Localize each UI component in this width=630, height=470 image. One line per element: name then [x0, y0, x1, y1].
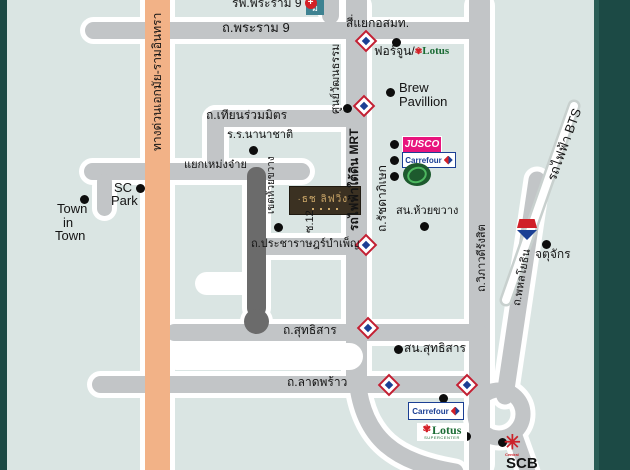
road-white-soi-b [163, 343, 363, 370]
hospital-cross-icon: + [305, 0, 317, 9]
road-dark-soi-end [244, 309, 269, 334]
central-flower-icon: ✳ [504, 433, 521, 453]
poi-dot-carrefour [390, 156, 399, 165]
lotus-flower-icon: ✾ [423, 425, 431, 435]
label-school: ร.ร.นานาชาติ [227, 130, 293, 142]
label-road-ratchadaphisek: ถ.รัชดาภิเษก [376, 165, 389, 232]
poi-dot-sutthisan-police [394, 345, 403, 354]
fortune-text: ฟอร์จูน/ [374, 45, 415, 58]
label-expressway: ทางด่วนเอกมัย-รามอินทรา [151, 13, 164, 151]
left-border [0, 0, 7, 470]
jusco-logo: JUSCO [402, 136, 442, 153]
poi-dot-green-mall [390, 172, 399, 181]
label-road-pracharat-bamphen: ถ.ประชาราษฎร์บำเพ็ญ [251, 239, 359, 251]
label-road-sutthisan: ถ.สุทธิสาร [283, 324, 337, 337]
project-deco-dots [312, 208, 338, 210]
label-town-1: Town [57, 202, 87, 216]
label-mcot-intersection: สี่แยกอสมท. [346, 17, 409, 30]
lotus-text: Lotus [422, 46, 449, 58]
label-brew: Brew [399, 81, 429, 95]
map-canvas: รพ.พระราม 9 + สี่แยกอสมท. ถ.พระราม 9 ฟอร… [0, 0, 630, 470]
bts-logo [517, 219, 537, 242]
label-scb: SCB [506, 456, 538, 470]
lotus-flower-icon: ✾ [415, 47, 423, 56]
project-name: ·ธช ลิฟวิ่ง· [297, 192, 352, 207]
poi-dot-jusco [390, 140, 399, 149]
lotus-sub-text: SUPERCENTER [424, 436, 460, 440]
label-soi-12: ซ.12 [305, 210, 317, 233]
label-rama9-hospital: รพ.พระราม 9 + [232, 0, 317, 10]
poi-dot-brew-pavillion [386, 88, 395, 97]
label-mrt-line: รถไฟฟ้าใต้ดิน MRT [348, 129, 361, 231]
label-sutthisan-police: สน.สุทธิสาร [404, 342, 466, 355]
label-park: Park [111, 194, 138, 208]
green-oval-mall-logo [403, 163, 431, 186]
right-border [594, 0, 630, 470]
rama9-hospital-text: รพ.พระราม 9 [232, 0, 302, 10]
poi-dot-cultural-centre [343, 104, 352, 113]
carrefour-ladprao-logo: Carrefour [408, 402, 464, 420]
label-cultural-centre: ศูนย์วัฒนธรรม [331, 44, 343, 114]
label-town-3: Town [55, 229, 85, 243]
carrefour-mark-icon [451, 407, 460, 416]
label-road-lat-phrao: ถ.ลาดพร้าว [287, 376, 347, 389]
road-scpark-stub [97, 174, 112, 216]
label-road-thiam-ruam-mit: ถ.เทียนร่วมมิตร [206, 109, 287, 122]
label-huai-khwang-district: เขตห้วยขวาง [267, 156, 278, 214]
label-pavillion: Pavillion [399, 95, 447, 109]
road-rachada-top-stub [322, 0, 339, 24]
poi-dot-sc-park [136, 184, 145, 193]
carrefour-text: Carrefour [412, 407, 448, 416]
label-fortune-lotus: ฟอร์จูน/ ✾ Lotus [374, 45, 449, 58]
poi-dot-huai-khwang-police [420, 222, 429, 231]
label-road-vibhavadi: ถ.วิภาวดีรังสิต [477, 224, 489, 292]
label-meng-jai: แยกเหม่งจ๋าย [184, 160, 247, 172]
label-huai-khwang-police: สน.ห้วยขวาง [396, 206, 458, 218]
label-road-rama9: ถ.พระราม 9 [222, 21, 290, 35]
lotus-supercenter-logo: ✾ Lotus SUPERCENTER [417, 423, 467, 441]
poi-dot-school [249, 146, 258, 155]
poi-dot-district-office [274, 223, 283, 232]
label-chatuchak: จตุจักร [535, 248, 571, 261]
carrefour-mark-icon [444, 156, 453, 165]
